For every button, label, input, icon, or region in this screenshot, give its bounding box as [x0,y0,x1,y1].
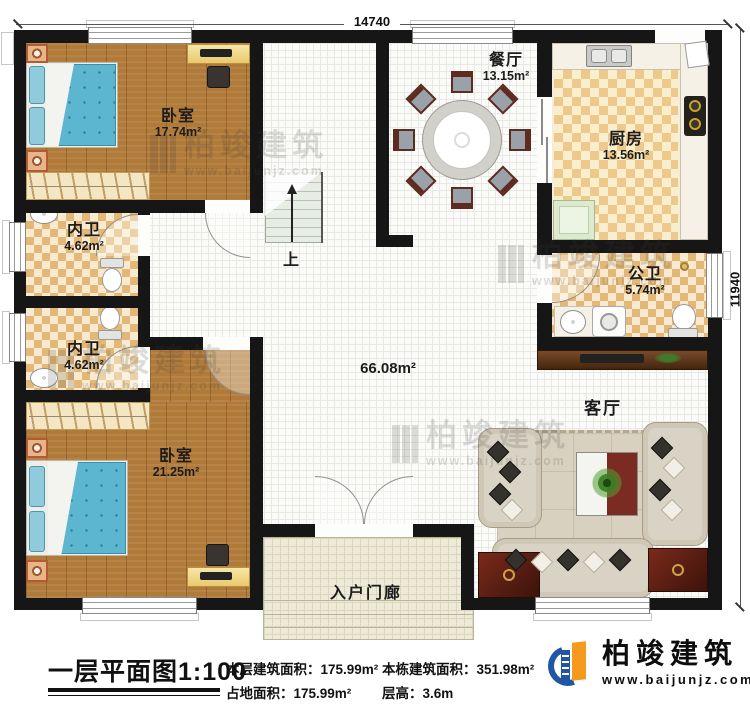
stove [684,96,706,136]
wall-bedroom-bottom-right [250,337,263,610]
stat-floor-area: 本层建筑面积：175.99m² [226,658,378,678]
fridge [553,200,595,240]
bed-pillow [29,466,45,507]
porch-step-line [264,627,473,628]
brand-name: 柏竣建筑 [602,640,750,668]
stat-total-area: 本栋建筑面积：351.98m² [382,658,534,678]
wall-bedroom-top-right [250,30,263,213]
chair [206,544,229,566]
room-label-kitchen: 厨房 13.56m² [576,131,676,162]
entry-door-opening [315,524,413,537]
stairs-railing [321,172,323,243]
nightstand [26,150,48,172]
dining-table-center [454,132,470,148]
wardrobe [26,172,150,200]
plan-title: 一层平面图1:100 [48,652,247,688]
bed-pillow [29,511,45,552]
window [9,222,26,272]
sliding-door-panel [541,99,543,145]
dining-chair [393,129,415,151]
chair [207,66,230,88]
title-underline [48,695,220,696]
sliding-door-opening [537,97,552,183]
wall-dining-stub [376,235,413,247]
wall-right [708,30,722,610]
brand-logo-icon [548,634,594,692]
title-underline [48,688,220,692]
side-table [648,548,708,592]
hall-area-label: 66.08m² [338,360,438,377]
stairs-up-label: 上 [276,246,306,270]
stat-floor-height: 层高：3.6m [382,682,453,702]
nightstand [26,438,48,458]
toilet-tank [98,330,122,340]
wall-kitchen-bottom [537,240,722,253]
stairs-direction-line [291,188,293,242]
plant [590,466,624,500]
window [706,253,723,318]
wall-public-bath-bottom [537,337,722,350]
bed-pillow [29,66,45,104]
top-dimension-label: 14740 [344,14,400,29]
wall-baths-divider [14,296,150,308]
brand-website: www.baijunjz.com [602,672,750,687]
wall-dining-left [376,30,389,247]
wall-entry-right-pier [461,524,474,610]
nightstand [26,560,48,582]
room-label-dining: 餐厅 13.15m² [456,52,556,83]
window [9,313,26,362]
window-sill [533,613,652,621]
bed-pillow [29,107,45,145]
toilet [100,306,120,330]
tv [200,572,232,580]
window [88,27,192,44]
toilet-tank [100,258,124,268]
brand-logo: 柏竣建筑 www.baijunjz.com [548,634,750,692]
room-label-inner-bath-top: 内卫 4.62m² [44,222,124,253]
right-dimension-label: 11940 [728,263,743,317]
washing-machine [592,306,626,337]
kitchen-counter [680,43,708,240]
door-opening [138,215,150,256]
dining-chair [451,187,473,209]
stat-footprint-area: 占地面积：175.99m² [226,682,351,702]
room-label-living: 客厅 [563,394,643,419]
window [412,27,513,44]
room-label-bedroom-top: 卧室 17.74m² [128,108,228,139]
door-opening [138,347,150,388]
room-label-inner-bath-bottom: 内卫 4.62m² [44,341,124,372]
plant-decor [655,353,681,363]
wall-sill-box [1,32,14,65]
toilet [102,268,122,292]
porch-step-line [264,614,473,615]
tv [200,49,232,57]
wall-bath-bottom [14,390,150,402]
window-sill [80,613,199,621]
logo-building-icon [572,641,586,680]
room-label-bedroom-bottom: 卧室 21.25m² [126,448,226,479]
door-opening [205,200,250,213]
logo-building-icon [561,650,570,680]
door-opening [537,255,552,303]
wardrobe [26,402,150,430]
floor-plan-screen: 14740 11940 [0,0,750,707]
nightstand [26,44,48,63]
back-door-leaf [684,41,709,69]
room-label-public-bath: 公卫 5.74m² [595,266,695,297]
door-opening [203,337,250,350]
window [535,597,650,614]
sofa-right [642,422,708,546]
stairs-arrow-up-icon [287,179,297,194]
porch-label: 入户门廊 [296,579,436,603]
dining-chair [509,129,531,151]
toilet [672,304,696,330]
sink [560,310,586,334]
window [82,597,197,614]
kitchen-sink [586,45,632,67]
tv [580,354,644,363]
sliding-door-panel [546,137,548,183]
right-dimension-line [740,28,741,608]
